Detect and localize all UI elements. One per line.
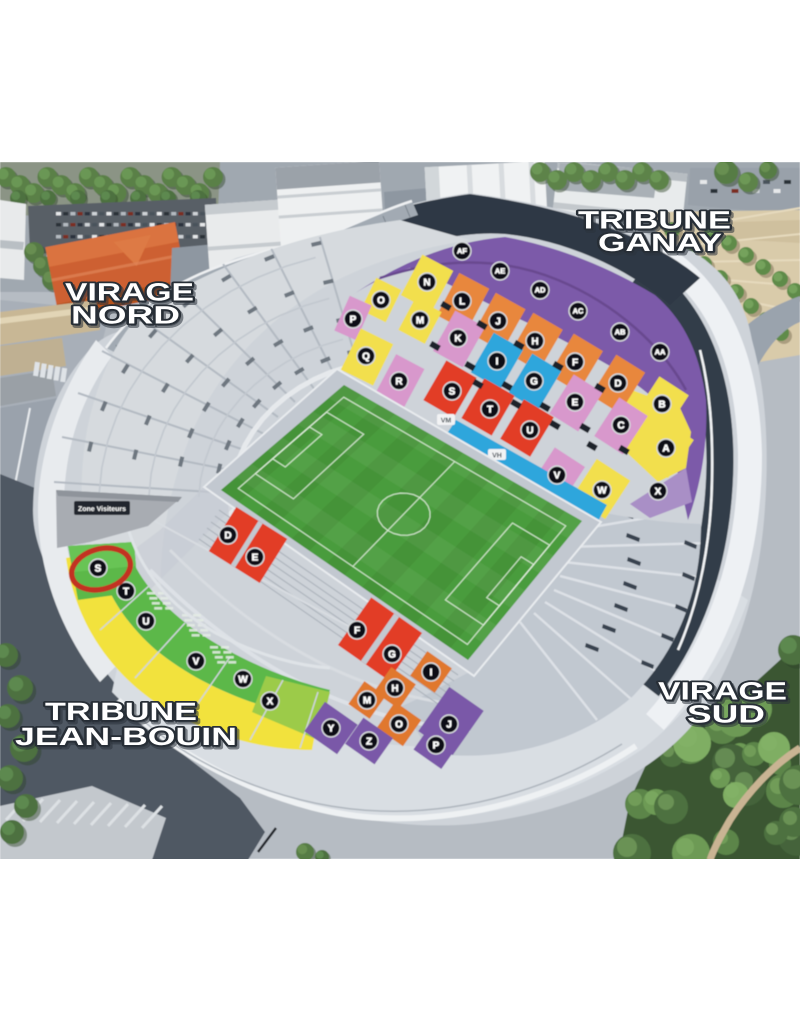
svg-text:U: U xyxy=(526,426,533,437)
svg-text:X: X xyxy=(267,697,274,708)
svg-text:AE: AE xyxy=(495,267,505,276)
svg-text:VH: VH xyxy=(492,453,502,460)
svg-text:R: R xyxy=(395,377,403,388)
svg-text:I: I xyxy=(496,357,499,368)
svg-text:TRIBUNE: TRIBUNE xyxy=(45,698,197,726)
svg-text:E: E xyxy=(252,553,259,564)
svg-text:W: W xyxy=(597,486,607,497)
svg-text:A: A xyxy=(662,444,669,455)
svg-text:P: P xyxy=(433,741,440,752)
svg-text:SUD: SUD xyxy=(687,701,765,729)
svg-text:AD: AD xyxy=(535,286,546,295)
svg-text:M: M xyxy=(363,696,371,707)
svg-text:G: G xyxy=(530,377,538,388)
svg-text:VM: VM xyxy=(441,418,452,425)
svg-text:V: V xyxy=(193,657,200,668)
svg-text:Q: Q xyxy=(362,352,370,363)
svg-text:U: U xyxy=(142,617,149,628)
svg-text:L: L xyxy=(459,297,465,308)
svg-text:D: D xyxy=(224,531,231,542)
svg-text:AC: AC xyxy=(573,307,584,316)
svg-text:I: I xyxy=(430,668,433,679)
svg-text:Zone Visiteurs: Zone Visiteurs xyxy=(78,505,126,513)
svg-text:J: J xyxy=(495,317,501,328)
svg-text:JEAN-BOUIN: JEAN-BOUIN xyxy=(15,723,237,751)
svg-text:S: S xyxy=(449,387,456,398)
svg-text:O: O xyxy=(395,720,403,731)
svg-text:P: P xyxy=(350,315,357,326)
svg-text:AB: AB xyxy=(615,328,626,337)
svg-text:S: S xyxy=(95,564,102,575)
svg-text:T: T xyxy=(123,587,129,598)
svg-text:B: B xyxy=(658,400,665,411)
svg-text:T: T xyxy=(487,405,493,416)
svg-text:O: O xyxy=(377,296,385,307)
svg-text:AA: AA xyxy=(655,348,666,357)
svg-text:GANAY: GANAY xyxy=(598,229,722,257)
svg-text:W: W xyxy=(238,675,248,686)
svg-text:X: X xyxy=(655,487,662,498)
svg-text:H: H xyxy=(391,684,398,695)
svg-text:K: K xyxy=(454,334,462,345)
svg-text:V: V xyxy=(554,471,561,482)
svg-text:F: F xyxy=(354,626,360,637)
svg-text:Z: Z xyxy=(366,737,372,748)
svg-text:H: H xyxy=(531,337,538,348)
svg-text:D: D xyxy=(614,379,621,390)
svg-text:M: M xyxy=(416,316,424,327)
svg-text:F: F xyxy=(572,358,578,369)
svg-text:G: G xyxy=(388,650,396,661)
svg-text:J: J xyxy=(446,720,452,731)
svg-text:C: C xyxy=(617,421,624,432)
svg-text:NORD: NORD xyxy=(71,302,180,330)
svg-text:Y: Y xyxy=(328,724,335,735)
svg-text:AF: AF xyxy=(457,247,467,256)
svg-text:N: N xyxy=(423,278,430,289)
svg-text:E: E xyxy=(572,398,579,409)
